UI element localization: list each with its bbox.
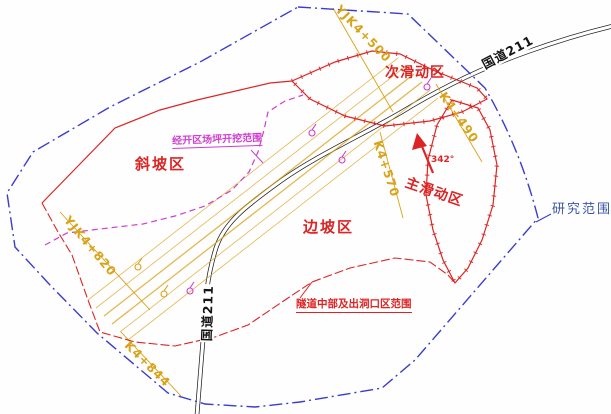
tunnel-corridor-line [104,74,414,316]
azimuth-label: 342° [431,156,454,166]
study-boundary-group [7,7,551,407]
slope-zone-label: 斜坡区 [135,156,186,173]
road-line [197,26,611,414]
borehole-marker [135,258,168,297]
road-group [197,26,611,414]
tunnel-corridor-line [112,82,422,324]
secondary-slide-zone-label: 次滑动区 [385,66,445,81]
tunnel-corridor-line [96,66,406,308]
excavation-leader-line [251,150,263,163]
study-area-map: 研究范围 次滑动区 主滑动区 斜坡区 边坡区 342° 国道211 国道211 … [0,0,611,414]
road-label-bottom: 国道211 [200,284,216,343]
road-centerline [197,26,611,414]
north-arrow-head [412,133,427,150]
side-slope-zone-label: 边坡区 [303,219,354,236]
tunnel-leader-line [300,282,312,298]
tunnel-callout-label: 隧道中部及出洞口区范围 [296,299,412,313]
map-svg [0,0,611,414]
study-scope-label: 研究范围 [552,203,611,217]
